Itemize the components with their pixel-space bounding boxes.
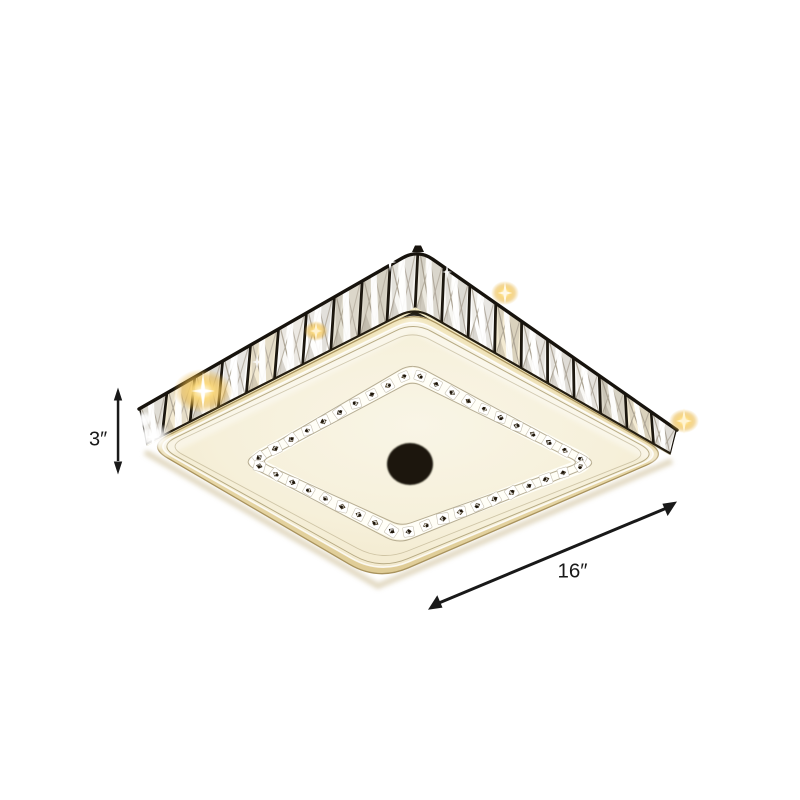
svg-text:16″: 16″ [558,560,588,583]
svg-text:3″: 3″ [89,429,107,451]
